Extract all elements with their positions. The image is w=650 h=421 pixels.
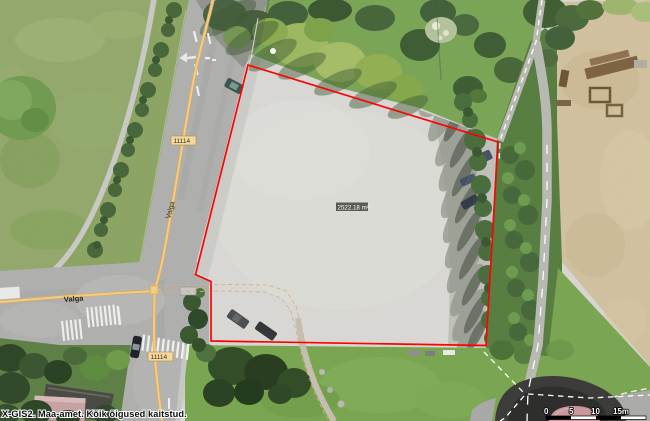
svg-text:5: 5 xyxy=(569,407,574,416)
svg-text:15m: 15m xyxy=(613,407,629,416)
svg-text:10: 10 xyxy=(591,407,600,416)
svg-text:0: 0 xyxy=(544,407,549,416)
